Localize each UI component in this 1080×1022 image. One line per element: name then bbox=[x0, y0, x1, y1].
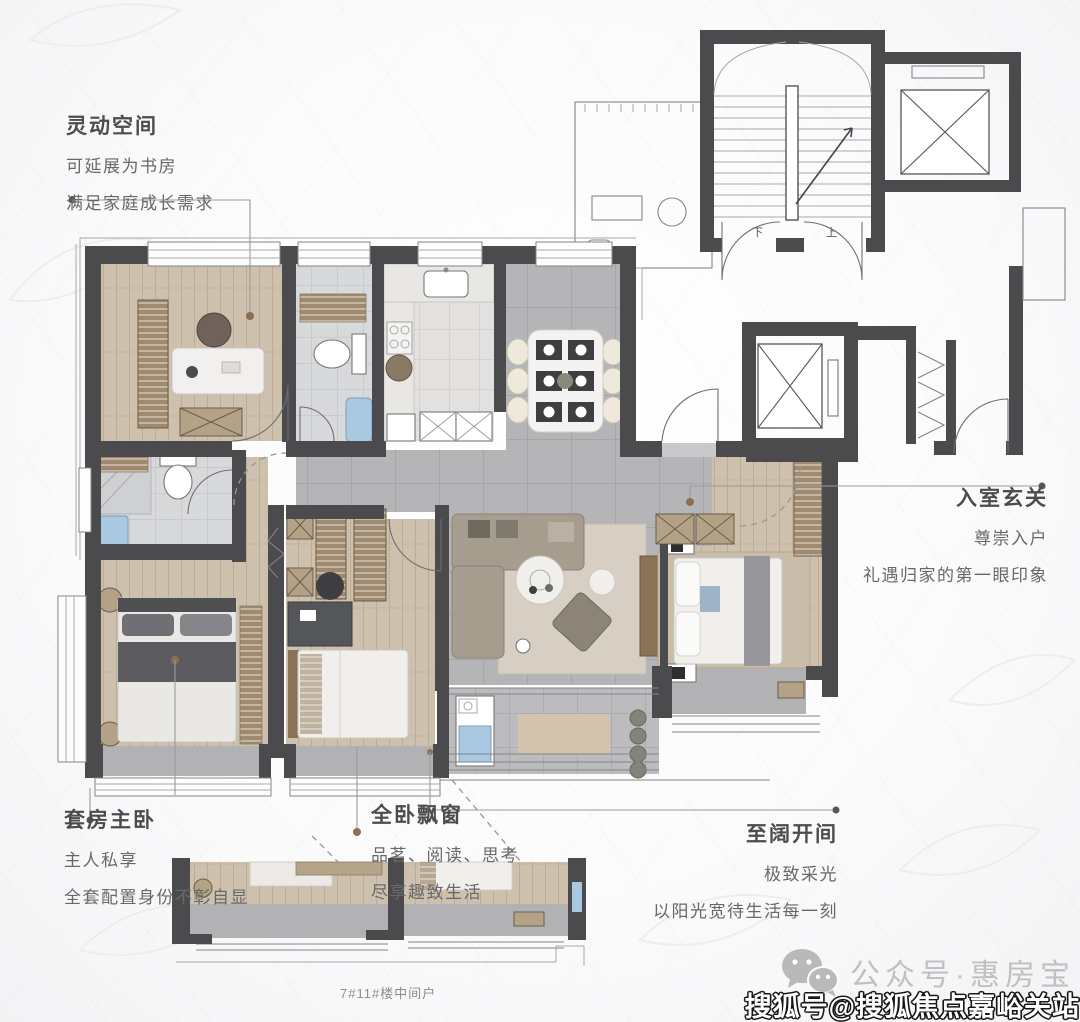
common-core: 下 上 bbox=[575, 30, 1065, 455]
annotation-line: 极致采光 bbox=[653, 860, 838, 885]
annotation-flex-space: 灵动空间 可延展为书房 满足家庭成长需求 bbox=[66, 110, 214, 214]
master-bay-seat bbox=[103, 746, 259, 776]
annotation-line: 礼遇归家的第一眼印象 bbox=[863, 561, 1048, 586]
annotation-line: 满足家庭成长需求 bbox=[66, 189, 214, 214]
floorplan-page: 下 上 bbox=[0, 0, 1080, 1022]
annotation-line: 可延展为书房 bbox=[66, 152, 214, 177]
wardrobe bbox=[354, 509, 386, 601]
annotation-line: 主人私享 bbox=[64, 846, 249, 871]
shower-bench bbox=[98, 456, 148, 472]
tv-console bbox=[640, 556, 660, 656]
stair-up-label: 上 bbox=[826, 226, 837, 239]
bay-window-master-left bbox=[58, 596, 86, 762]
bay-window-right-bottom bbox=[672, 716, 820, 732]
shower-mat bbox=[300, 294, 366, 322]
wok-bowl bbox=[386, 355, 412, 381]
annotation-line: 尊崇入户 bbox=[863, 524, 1048, 549]
annotation-title: 灵动空间 bbox=[66, 110, 214, 140]
window-study-top bbox=[148, 242, 280, 266]
dining-furniture bbox=[507, 330, 624, 432]
window-bath-left bbox=[79, 468, 91, 532]
window-bath-top bbox=[298, 242, 370, 266]
annotation-title: 入室玄关 bbox=[863, 482, 1048, 512]
elevator-shaft-top bbox=[871, 52, 1021, 192]
second-bay-seat bbox=[295, 746, 433, 776]
elevator-shaft-mid bbox=[742, 322, 858, 452]
stair-divider bbox=[786, 86, 798, 220]
annotation-title: 套房主卧 bbox=[64, 804, 249, 834]
stair-direction-arrow bbox=[796, 128, 852, 204]
toilet-bowl bbox=[164, 465, 192, 499]
bathtub bbox=[346, 398, 372, 442]
window-kitchen-top bbox=[418, 242, 482, 266]
desk2 bbox=[288, 602, 352, 646]
stove bbox=[387, 322, 412, 354]
bay-basket bbox=[778, 682, 804, 698]
sofa-left bbox=[452, 566, 504, 658]
annotation-foyer: 入室玄关 尊崇入户 礼遇归家的第一眼印象 bbox=[863, 482, 1048, 586]
apartment bbox=[58, 238, 858, 796]
centerpiece bbox=[557, 373, 573, 389]
desk bbox=[172, 348, 264, 394]
stair-down-label: 下 bbox=[752, 227, 763, 239]
plant bbox=[630, 728, 646, 744]
balcony-mat bbox=[518, 714, 610, 754]
shaft-louvers bbox=[858, 208, 1065, 455]
annotation-line: 品茗、阅读、思考 bbox=[371, 841, 519, 866]
entry-door bbox=[662, 389, 718, 441]
bay-window-second-bottom bbox=[290, 778, 440, 796]
master-hall-floor bbox=[246, 457, 268, 560]
annotation-title: 至阔开间 bbox=[653, 818, 838, 848]
annotation-line: 全套配置身份不彰自显 bbox=[64, 883, 249, 908]
annotation-wide-bay: 至阔开间 极致采光 以阳光宽待生活每一刻 bbox=[653, 818, 838, 922]
toilet-bowl bbox=[314, 340, 350, 368]
stairwell: 下 上 bbox=[700, 30, 885, 280]
bed-throw bbox=[744, 556, 770, 666]
annotation-line: 尽享趣致生活 bbox=[371, 878, 519, 903]
sohu-watermark: 搜狐号@搜狐焦点嘉峪关站 bbox=[745, 985, 1080, 1022]
fridge bbox=[387, 414, 415, 441]
annotation-title: 全卧飘窗 bbox=[371, 799, 519, 829]
bed-runner bbox=[240, 606, 262, 744]
entry-threshold bbox=[662, 443, 716, 457]
kitchen-sink bbox=[424, 271, 468, 297]
desk2-chair bbox=[316, 572, 344, 600]
coffee-table bbox=[516, 556, 564, 604]
inset-bay-seat bbox=[190, 904, 388, 938]
wardrobe-right bbox=[794, 460, 822, 556]
neighbor-entry-door bbox=[954, 399, 1008, 453]
unit-caption: 7#11#楼中间户 bbox=[340, 983, 436, 1002]
stair-lobby-door-left bbox=[722, 222, 780, 280]
laundry-basket bbox=[459, 726, 491, 762]
bed-second-headboard bbox=[288, 650, 298, 738]
side-table bbox=[589, 569, 615, 595]
living-furniture bbox=[452, 514, 660, 674]
plant bbox=[630, 710, 646, 726]
toilet-tank bbox=[352, 334, 366, 374]
bay-window-master-bottom bbox=[95, 778, 271, 796]
elevator-counterweight bbox=[912, 66, 984, 78]
bookshelf bbox=[138, 300, 168, 428]
desk-chair bbox=[197, 313, 231, 347]
annotation-master-suite: 套房主卧 主人私享 全套配置身份不彰自显 bbox=[64, 804, 249, 908]
annotation-line: 以阳光宽待生活每一刻 bbox=[653, 897, 838, 922]
annotation-bay-windows: 全卧飘窗 品茗、阅读、思考 尽享趣致生活 bbox=[371, 799, 519, 903]
window-dining-top bbox=[536, 242, 612, 266]
